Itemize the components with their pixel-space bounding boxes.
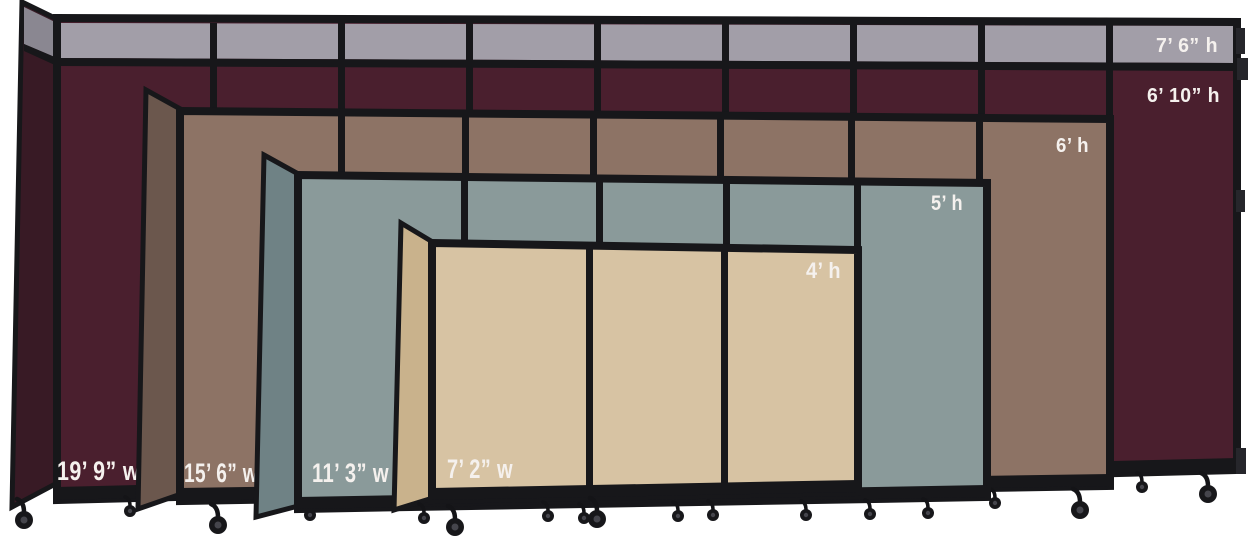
width-label-19-9: 19’ 9” w [57,456,140,486]
height-label-5: 5’ h [931,192,963,215]
caster-wheel [446,506,464,536]
top-strip [61,23,1233,63]
divider-4ft: 4’ h 7’ 2” w [394,223,858,528]
height-label-4: 4’ h [806,258,841,283]
product-size-comparison-image: 7’ 6” h 6’ 10” h 19’ 9” w 6’ h 15’ 6” w [0,0,1248,542]
divider-comparison-graphic: 7’ 6” h 6’ 10” h 19’ 9” w 6’ h 15’ 6” w [0,0,1248,542]
caster-wheel [209,504,227,534]
width-label-11-3: 11’ 3” w [312,458,389,488]
width-label-15-6: 15’ 6” w [184,458,258,488]
caster-wheel [1199,473,1217,503]
height-label-6: 6’ h [1056,135,1089,157]
width-label-7-2: 7’ 2” w [447,454,513,484]
caster-wheel [1071,489,1089,519]
height-label-7-6: 7’ 6” h [1156,35,1218,57]
height-label-6-10: 6’ 10” h [1147,85,1220,107]
